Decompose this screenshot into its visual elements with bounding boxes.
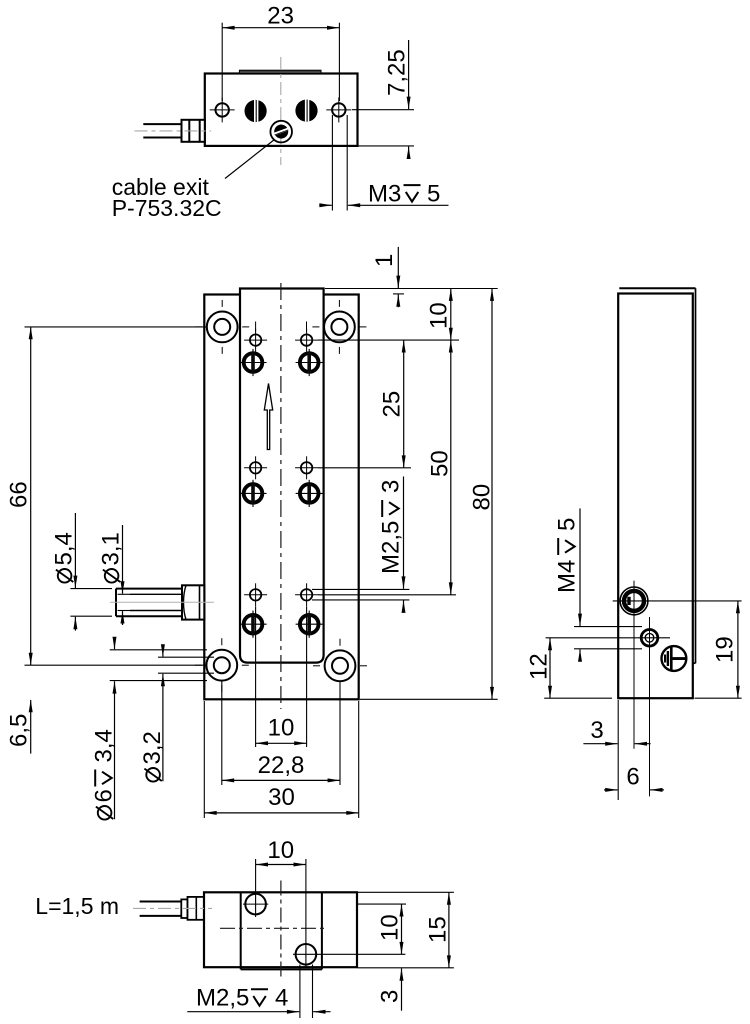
svg-text:M2,5: M2,5 (196, 985, 249, 1012)
svg-text:10: 10 (377, 914, 404, 941)
svg-text:3: 3 (590, 717, 603, 744)
svg-text:80: 80 (469, 484, 496, 511)
svg-text:23: 23 (267, 3, 294, 30)
svg-text:12: 12 (526, 653, 553, 680)
svg-text:15: 15 (425, 916, 452, 943)
svg-text:5,4: 5,4 (51, 532, 78, 565)
svg-text:6: 6 (91, 789, 118, 802)
svg-text:10: 10 (267, 837, 294, 864)
svg-text:5: 5 (427, 180, 440, 207)
svg-text:P-753.32C: P-753.32C (112, 195, 222, 221)
svg-text:L=1,5 m: L=1,5 m (35, 893, 119, 919)
svg-text:10: 10 (268, 715, 295, 742)
svg-text:10: 10 (426, 302, 453, 329)
svg-text:3,2: 3,2 (139, 731, 166, 764)
svg-text:3,4: 3,4 (91, 729, 118, 762)
svg-text:3: 3 (378, 480, 405, 493)
svg-text:30: 30 (268, 784, 295, 811)
svg-text:50: 50 (427, 450, 454, 477)
svg-text:6,5: 6,5 (6, 714, 33, 747)
svg-text:M4: M4 (554, 560, 581, 593)
svg-text:25: 25 (379, 391, 406, 418)
svg-text:4: 4 (275, 985, 288, 1012)
svg-text:6: 6 (626, 764, 639, 791)
svg-text:M2,5: M2,5 (378, 521, 405, 574)
svg-text:5: 5 (554, 518, 581, 531)
svg-text:3: 3 (377, 990, 404, 1003)
svg-text:M3: M3 (368, 180, 401, 207)
svg-text:66: 66 (6, 481, 33, 508)
svg-text:19: 19 (712, 636, 739, 663)
svg-text:3,1: 3,1 (98, 532, 125, 565)
svg-text:1: 1 (371, 254, 398, 267)
svg-text:7,25: 7,25 (384, 49, 411, 96)
svg-text:22,8: 22,8 (258, 752, 305, 779)
